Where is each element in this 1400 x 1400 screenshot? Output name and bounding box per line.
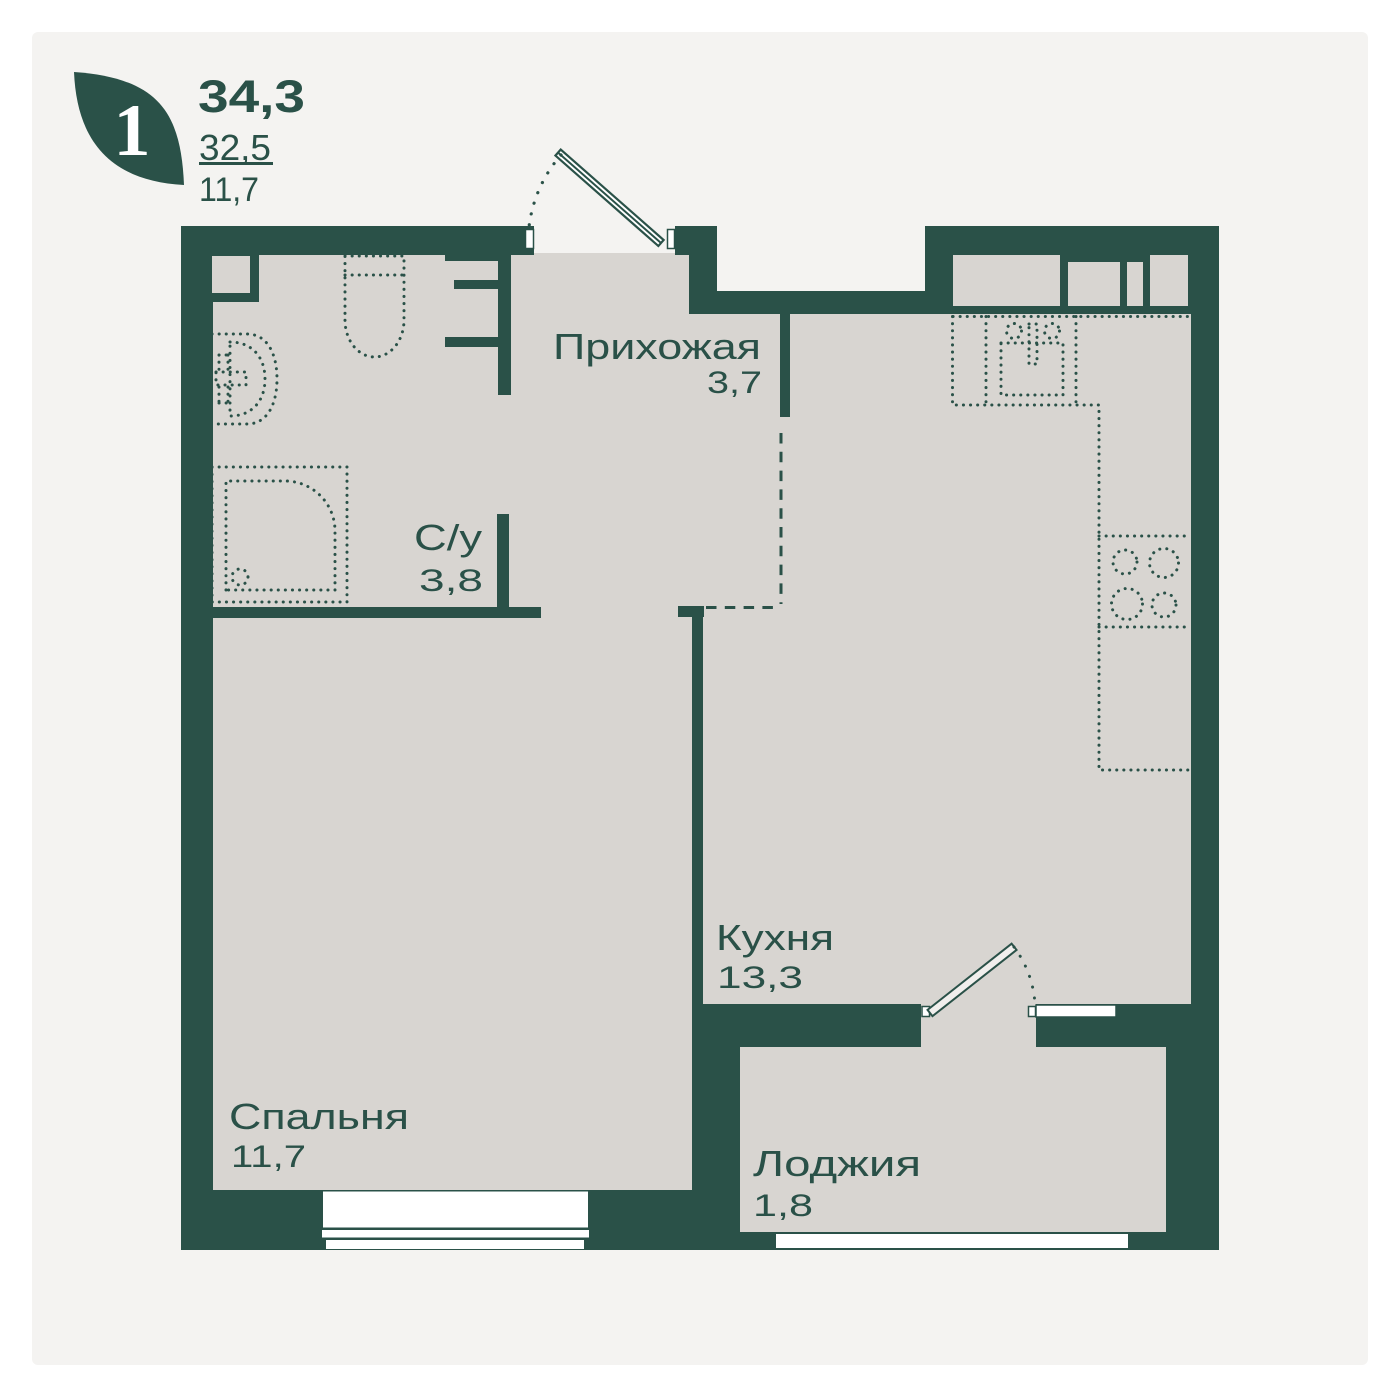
svg-text:3,7: 3,7 [707,364,762,400]
svg-text:1: 1 [114,90,151,172]
svg-text:Спальня: Спальня [229,1096,409,1137]
svg-text:11,7: 11,7 [231,1138,306,1174]
svg-text:3,8: 3,8 [419,562,483,598]
svg-text:Прихожая: Прихожая [553,326,761,367]
svg-text:1,8: 1,8 [753,1187,813,1223]
svg-text:Кухня: Кухня [716,917,834,958]
svg-text:11,7: 11,7 [199,171,259,209]
svg-text:Лоджия: Лоджия [753,1143,921,1184]
svg-text:34,3: 34,3 [198,71,305,122]
svg-text:13,3: 13,3 [717,959,803,995]
svg-text:32,5: 32,5 [199,127,271,168]
svg-text:С/у: С/у [414,517,482,558]
